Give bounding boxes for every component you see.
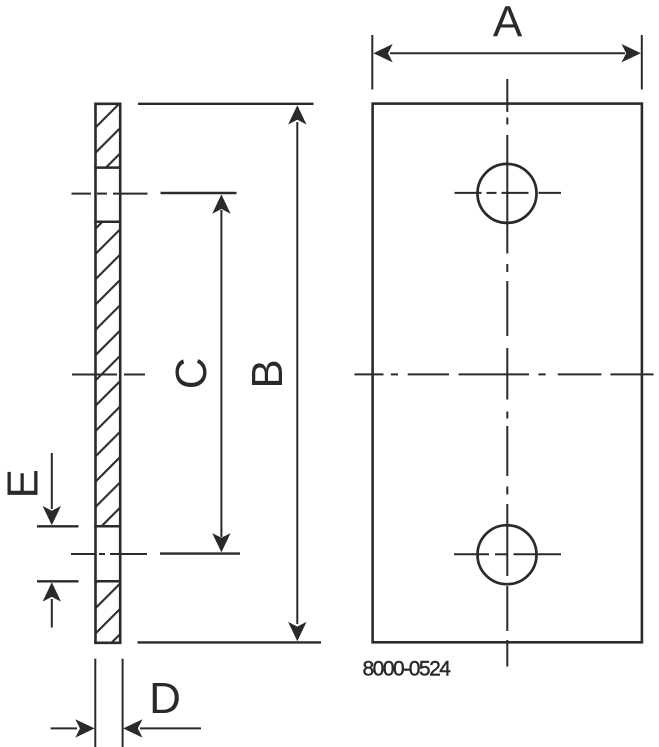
svg-text:D: D bbox=[149, 674, 181, 723]
svg-text:B: B bbox=[243, 359, 292, 388]
svg-text:A: A bbox=[493, 0, 523, 47]
svg-text:C: C bbox=[167, 358, 216, 390]
svg-text:E: E bbox=[0, 469, 47, 498]
svg-text:8000-0524: 8000-0524 bbox=[363, 658, 452, 681]
